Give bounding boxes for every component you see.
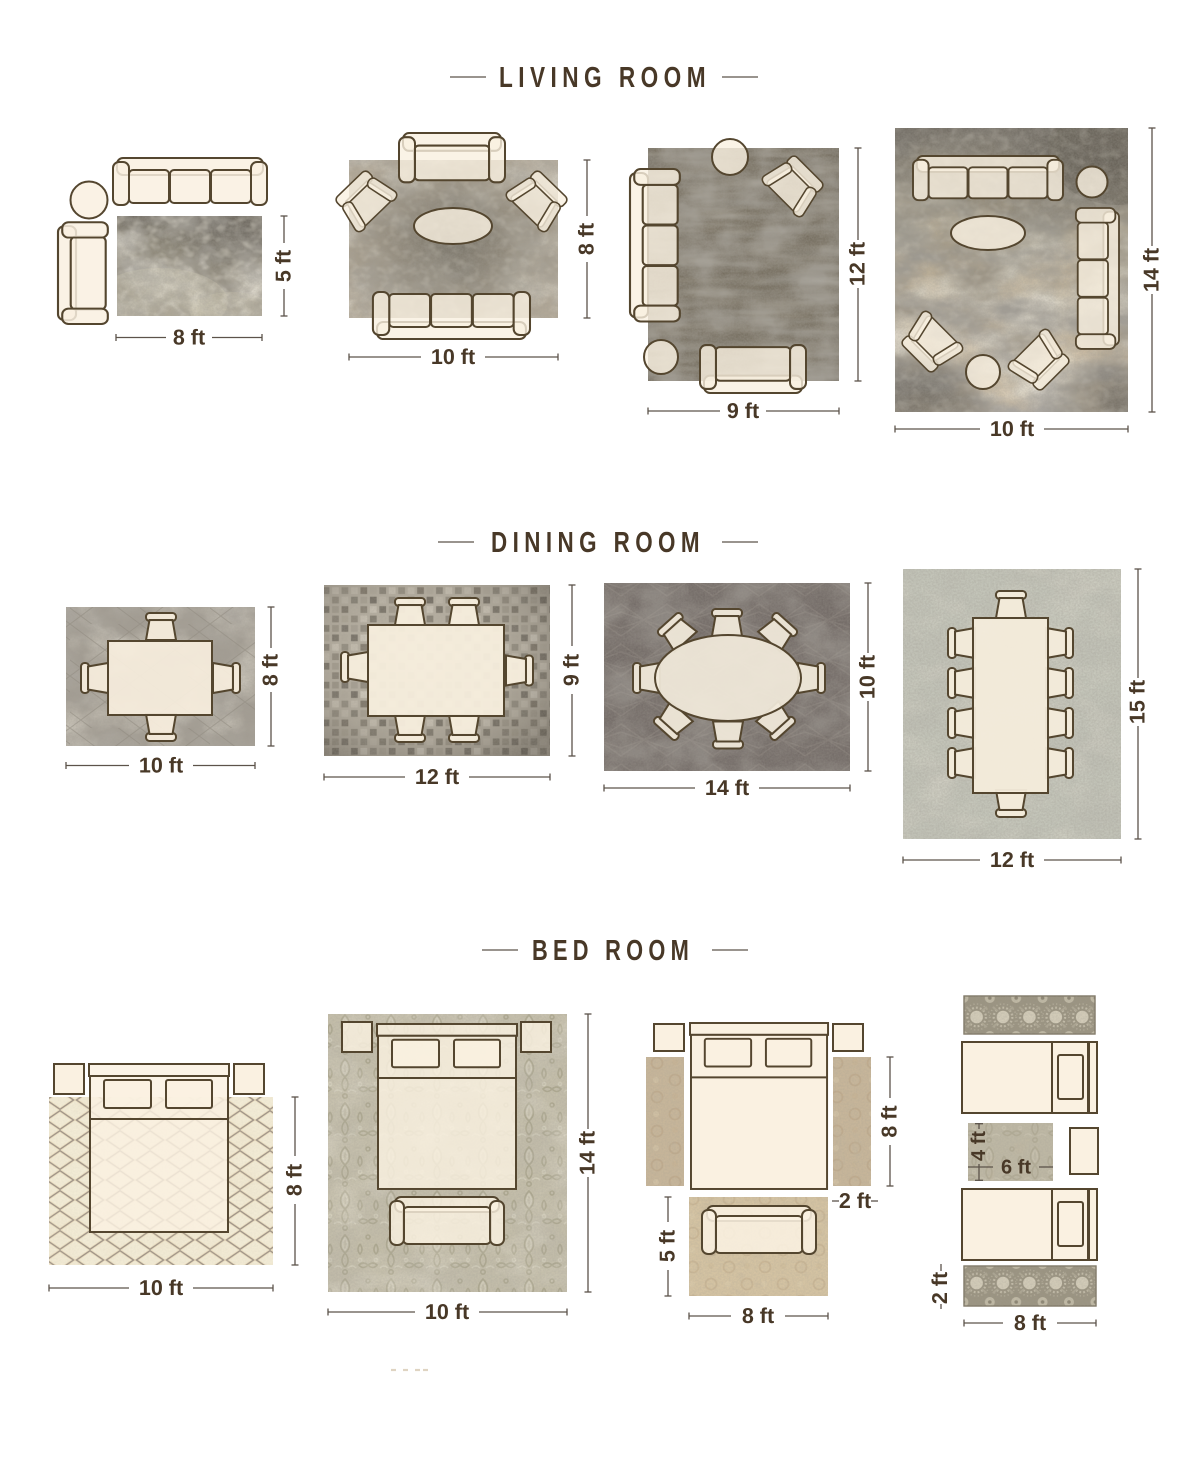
svg-text:8 ft: 8 ft [742, 1304, 774, 1328]
svg-text:8 ft: 8 ft [283, 1164, 307, 1196]
svg-text:10 ft: 10 ft [139, 754, 183, 778]
svg-text:5 ft: 5 ft [272, 250, 296, 282]
svg-text:10 ft: 10 ft [990, 417, 1034, 441]
svg-text:12 ft: 12 ft [415, 765, 459, 789]
svg-text:10 ft: 10 ft [139, 1276, 183, 1300]
svg-text:4 ft: 4 ft [968, 1131, 990, 1161]
svg-text:10 ft: 10 ft [425, 1300, 469, 1324]
svg-text:8 ft: 8 ft [1014, 1311, 1046, 1335]
svg-text:LIVING ROOM: LIVING ROOM [499, 62, 711, 94]
svg-text:12 ft: 12 ft [990, 848, 1034, 872]
svg-text:12 ft: 12 ft [846, 242, 870, 286]
svg-text:BED ROOM: BED ROOM [532, 935, 694, 967]
svg-text:2 ft: 2 ft [839, 1189, 871, 1213]
svg-text:8 ft: 8 ft [878, 1105, 902, 1137]
svg-text:6 ft: 6 ft [1001, 1157, 1031, 1179]
svg-text:8 ft: 8 ft [575, 223, 599, 255]
svg-text:10 ft: 10 ft [856, 655, 880, 699]
svg-text:5 ft: 5 ft [656, 1230, 680, 1262]
svg-text:14 ft: 14 ft [705, 776, 749, 800]
svg-text:9 ft: 9 ft [727, 399, 759, 423]
svg-text:8 ft: 8 ft [259, 654, 283, 686]
svg-text:8 ft: 8 ft [173, 326, 205, 350]
svg-text:9 ft: 9 ft [560, 654, 584, 686]
svg-text:DINING ROOM: DINING ROOM [491, 527, 705, 559]
svg-text:10 ft: 10 ft [431, 345, 475, 369]
svg-text:14 ft: 14 ft [576, 1131, 600, 1175]
svg-text:14 ft: 14 ft [1140, 248, 1164, 292]
svg-text:2 ft: 2 ft [928, 1272, 952, 1304]
svg-text:15 ft: 15 ft [1126, 680, 1150, 724]
